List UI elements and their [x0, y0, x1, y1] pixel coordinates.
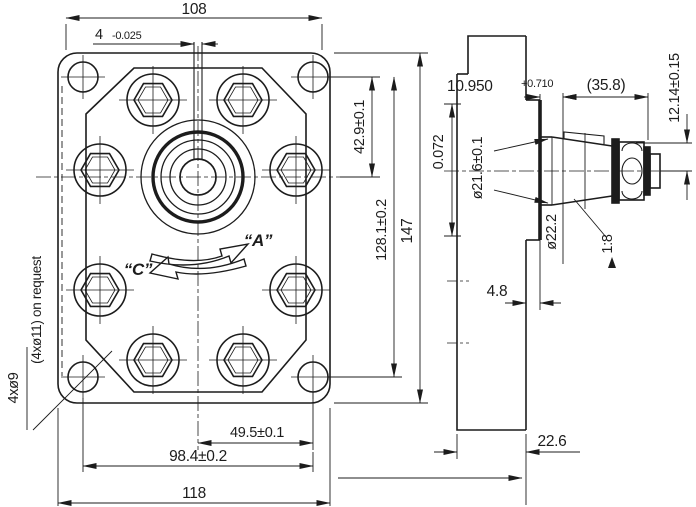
- top-boss: [468, 36, 526, 74]
- holes-note-line1: 4xø9: [6, 372, 22, 403]
- dim-4-8-label: 4.8: [487, 283, 508, 300]
- body-octagon: [86, 68, 306, 392]
- center-hub: [141, 42, 255, 234]
- front-view: “C” “A”: [6, 1, 428, 506]
- taper-callout: [574, 199, 616, 268]
- dim-10-950-tolerance: +0.710: [521, 78, 553, 90]
- hex-bolt: [262, 256, 330, 324]
- hex-bolt: [66, 136, 134, 204]
- dim-42-9-label: 42.9±0.1: [352, 100, 368, 154]
- dim-left-tolerance-label: 0.072: [431, 134, 447, 169]
- holes-note-line2: (4xø11) on request: [29, 256, 44, 364]
- rotation-label-a: “A”: [244, 231, 273, 250]
- taper-ratio-label: 1:8: [600, 234, 616, 253]
- dim-108-label: 108: [182, 1, 207, 18]
- hex-bolt: [209, 326, 277, 394]
- dim-98-4-label: 98.4±0.2: [169, 448, 227, 465]
- dim-118-label: 118: [182, 485, 206, 502]
- rotation-arrow-cw: [150, 244, 248, 265]
- dim-35-8-label: (35.8): [587, 77, 626, 94]
- pump-drawing-svg: “C” “A”: [0, 0, 696, 507]
- keyway-width-label: 4: [95, 27, 103, 43]
- hex-bolt: [262, 136, 330, 204]
- dim-12-14-label: 12.14±0.15: [667, 53, 683, 123]
- side-body: [447, 36, 540, 430]
- corner-hole: [61, 355, 105, 399]
- rotation-label-c: “C”: [124, 260, 153, 279]
- dim-49-5-label: 49.5±0.1: [230, 425, 284, 441]
- dim-22-6-label: 22.6: [538, 433, 567, 450]
- dim-147-label: 147: [399, 219, 416, 244]
- dia-21-6-label: ø21.6±0.1: [470, 137, 486, 200]
- centerlines: [36, 46, 356, 450]
- corner-hole: [61, 55, 105, 99]
- drawing-canvas: “C” “A”: [0, 0, 696, 507]
- hex-bolt: [119, 326, 187, 394]
- side-dimensions: [338, 93, 692, 505]
- side-view: 0.072 10.950 +0.710 (35.8) 12.14±0.15 ø2…: [338, 36, 694, 505]
- dim-49-5: [198, 392, 313, 450]
- rotation-arrows: [150, 244, 248, 279]
- dia-22-2-label: ø22.2: [544, 214, 560, 250]
- keyway-width-tolerance: -0.025: [112, 30, 142, 42]
- dim-10-950-label: 10.950: [447, 78, 493, 95]
- taper-top: [552, 137, 612, 146]
- taper-symbol: [608, 257, 616, 268]
- taper-bottom: [552, 196, 612, 205]
- dim-128-1-label: 128.1±0.2: [374, 199, 390, 261]
